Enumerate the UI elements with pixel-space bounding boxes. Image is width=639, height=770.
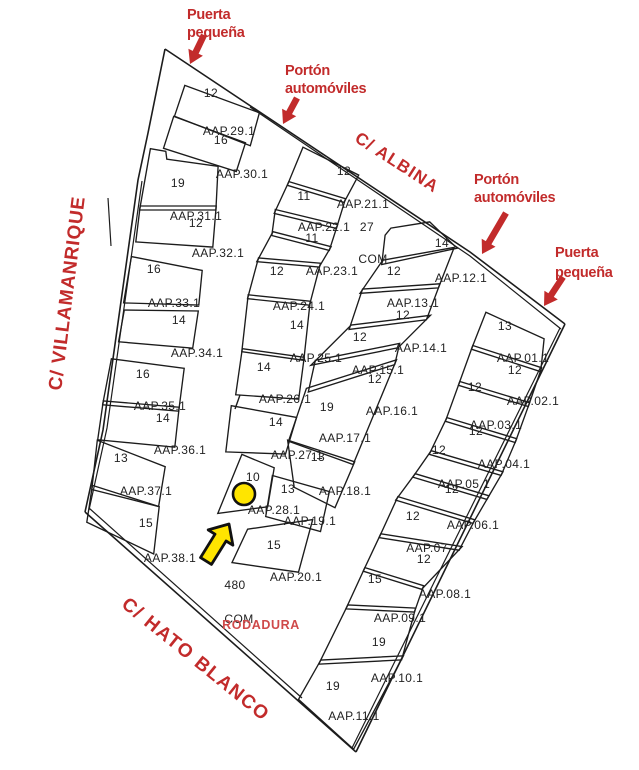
svg-text:AAP.09.1: AAP.09.1 (374, 611, 426, 625)
svg-text:AAP.17.1: AAP.17.1 (319, 431, 371, 445)
svg-text:15: 15 (267, 538, 281, 552)
svg-text:11: 11 (305, 231, 318, 245)
svg-text:14: 14 (435, 236, 449, 250)
svg-text:AAP.08.1: AAP.08.1 (419, 587, 471, 601)
svg-text:AAP.30.1: AAP.30.1 (216, 167, 268, 181)
svg-text:14: 14 (269, 415, 283, 429)
svg-text:AAP.14.1: AAP.14.1 (395, 341, 447, 355)
svg-text:13: 13 (498, 319, 512, 333)
svg-text:AAP.21.1: AAP.21.1 (337, 197, 389, 211)
svg-text:pequeña: pequeña (187, 25, 246, 41)
svg-text:16: 16 (214, 133, 228, 147)
svg-text:14: 14 (290, 318, 304, 332)
svg-text:AAP.20.1: AAP.20.1 (270, 570, 322, 584)
svg-text:AAP.10.1: AAP.10.1 (371, 671, 423, 685)
svg-text:19: 19 (326, 679, 340, 693)
svg-text:Portón: Portón (474, 172, 519, 188)
svg-text:12: 12 (353, 330, 367, 344)
svg-text:14: 14 (172, 313, 186, 327)
svg-text:AAP.01.1: AAP.01.1 (497, 351, 549, 365)
svg-text:12: 12 (189, 216, 203, 230)
svg-text:AAP.13.1: AAP.13.1 (387, 296, 439, 310)
svg-text:12: 12 (417, 552, 431, 566)
svg-text:AAP.23.1: AAP.23.1 (306, 264, 358, 278)
svg-text:automóviles: automóviles (285, 81, 367, 97)
svg-text:14: 14 (257, 360, 271, 374)
svg-text:12: 12 (204, 86, 218, 100)
svg-text:12: 12 (508, 363, 522, 377)
svg-text:27: 27 (360, 220, 374, 234)
svg-text:RODADURA: RODADURA (222, 618, 300, 632)
svg-text:AAP.25.1: AAP.25.1 (290, 351, 342, 365)
svg-text:AAP.11.1: AAP.11.1 (328, 709, 379, 723)
svg-text:AAP.33.1: AAP.33.1 (148, 296, 200, 310)
svg-text:AAP.34.1: AAP.34.1 (171, 346, 223, 360)
svg-text:AAP.04.1: AAP.04.1 (478, 457, 530, 471)
svg-text:15: 15 (139, 516, 153, 530)
svg-text:AAP.18.1: AAP.18.1 (319, 484, 371, 498)
svg-text:12: 12 (468, 380, 482, 394)
svg-text:AAP.06.1: AAP.06.1 (447, 518, 499, 532)
svg-text:automóviles: automóviles (474, 190, 556, 206)
svg-text:19: 19 (171, 176, 185, 190)
svg-text:AAP.32.1: AAP.32.1 (192, 246, 244, 260)
svg-text:Puerta: Puerta (555, 245, 600, 261)
svg-text:14: 14 (156, 411, 170, 425)
svg-text:12: 12 (396, 308, 410, 322)
svg-text:13: 13 (311, 450, 325, 464)
svg-text:15: 15 (368, 572, 382, 586)
svg-text:AAP.36.1: AAP.36.1 (154, 443, 206, 457)
svg-text:AAP.38.1: AAP.38.1 (144, 551, 196, 565)
svg-text:12: 12 (469, 424, 483, 438)
svg-text:16: 16 (136, 367, 150, 381)
svg-text:AAP.19.1: AAP.19.1 (284, 514, 336, 528)
svg-text:AAP.02.1: AAP.02.1 (507, 394, 559, 408)
svg-text:12: 12 (270, 264, 284, 278)
svg-text:AAP.37.1: AAP.37.1 (120, 484, 172, 498)
svg-text:Portón: Portón (285, 63, 330, 79)
svg-text:12: 12 (387, 264, 401, 278)
svg-text:AAP.16.1: AAP.16.1 (366, 404, 418, 418)
svg-text:12: 12 (406, 509, 420, 523)
svg-text:12: 12 (432, 443, 446, 457)
svg-text:Puerta: Puerta (187, 7, 232, 23)
svg-text:AAP.26.1: AAP.26.1 (259, 392, 311, 406)
svg-text:13: 13 (114, 451, 128, 465)
svg-text:16: 16 (147, 262, 161, 276)
svg-text:480: 480 (224, 578, 245, 592)
svg-text:AAP.12.1: AAP.12.1 (435, 271, 487, 285)
svg-text:19: 19 (320, 400, 334, 414)
svg-text:12: 12 (337, 164, 351, 178)
svg-text:11: 11 (297, 189, 310, 203)
svg-text:AAP.24.1: AAP.24.1 (273, 299, 325, 313)
svg-text:12: 12 (445, 482, 459, 496)
svg-text:10: 10 (246, 470, 260, 484)
svg-text:COM: COM (358, 252, 387, 266)
svg-text:12: 12 (368, 372, 382, 386)
svg-text:13: 13 (281, 482, 295, 496)
svg-text:19: 19 (372, 635, 386, 649)
svg-text:AAP.29.1: AAP.29.1 (203, 124, 255, 138)
